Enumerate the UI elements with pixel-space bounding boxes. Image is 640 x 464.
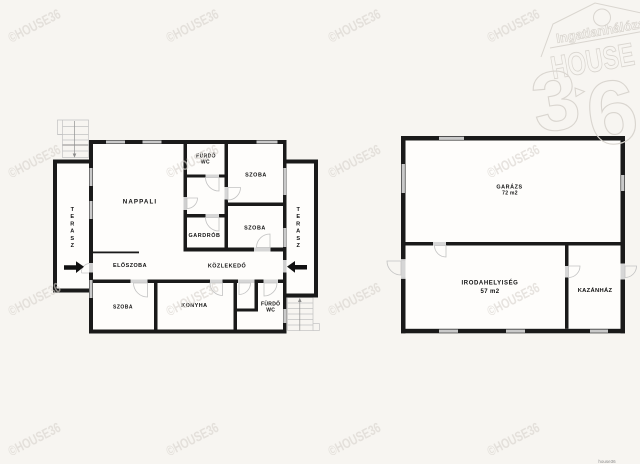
svg-text:KAZÁNHÁZ: KAZÁNHÁZ (578, 287, 613, 294)
svg-text:R: R (296, 221, 300, 227)
svg-text:WC: WC (266, 308, 275, 314)
svg-text:E: E (296, 214, 300, 220)
svg-text:57 m2: 57 m2 (480, 289, 499, 295)
svg-text:ELŐSZOBA: ELŐSZOBA (113, 262, 147, 269)
svg-text:FÜRDŐ: FÜRDŐ (261, 300, 280, 307)
svg-text:72 m2: 72 m2 (502, 191, 518, 197)
svg-text:house36: house36 (598, 459, 616, 464)
svg-text:R: R (70, 221, 74, 227)
svg-text:SZOBA: SZOBA (245, 172, 267, 178)
svg-text:IRODAHELYISÉG: IRODAHELYISÉG (462, 279, 519, 287)
svg-text:GARDRÓB: GARDRÓB (188, 231, 220, 239)
svg-text:GARÁZS: GARÁZS (496, 184, 522, 191)
svg-text:S: S (70, 236, 74, 242)
svg-text:SZOBA: SZOBA (244, 225, 266, 231)
svg-text:A: A (70, 229, 74, 235)
svg-text:KÖZLEKEDŐ: KÖZLEKEDŐ (208, 262, 246, 269)
svg-text:Z: Z (71, 243, 75, 249)
svg-text:T: T (296, 207, 300, 213)
svg-text:A: A (296, 229, 300, 235)
svg-text:E: E (70, 214, 74, 220)
svg-text:Z: Z (296, 243, 300, 249)
svg-text:S: S (296, 236, 300, 242)
svg-text:SZOBA: SZOBA (113, 304, 133, 310)
svg-text:NAPPALI: NAPPALI (123, 199, 157, 206)
svg-text:T: T (71, 207, 75, 213)
